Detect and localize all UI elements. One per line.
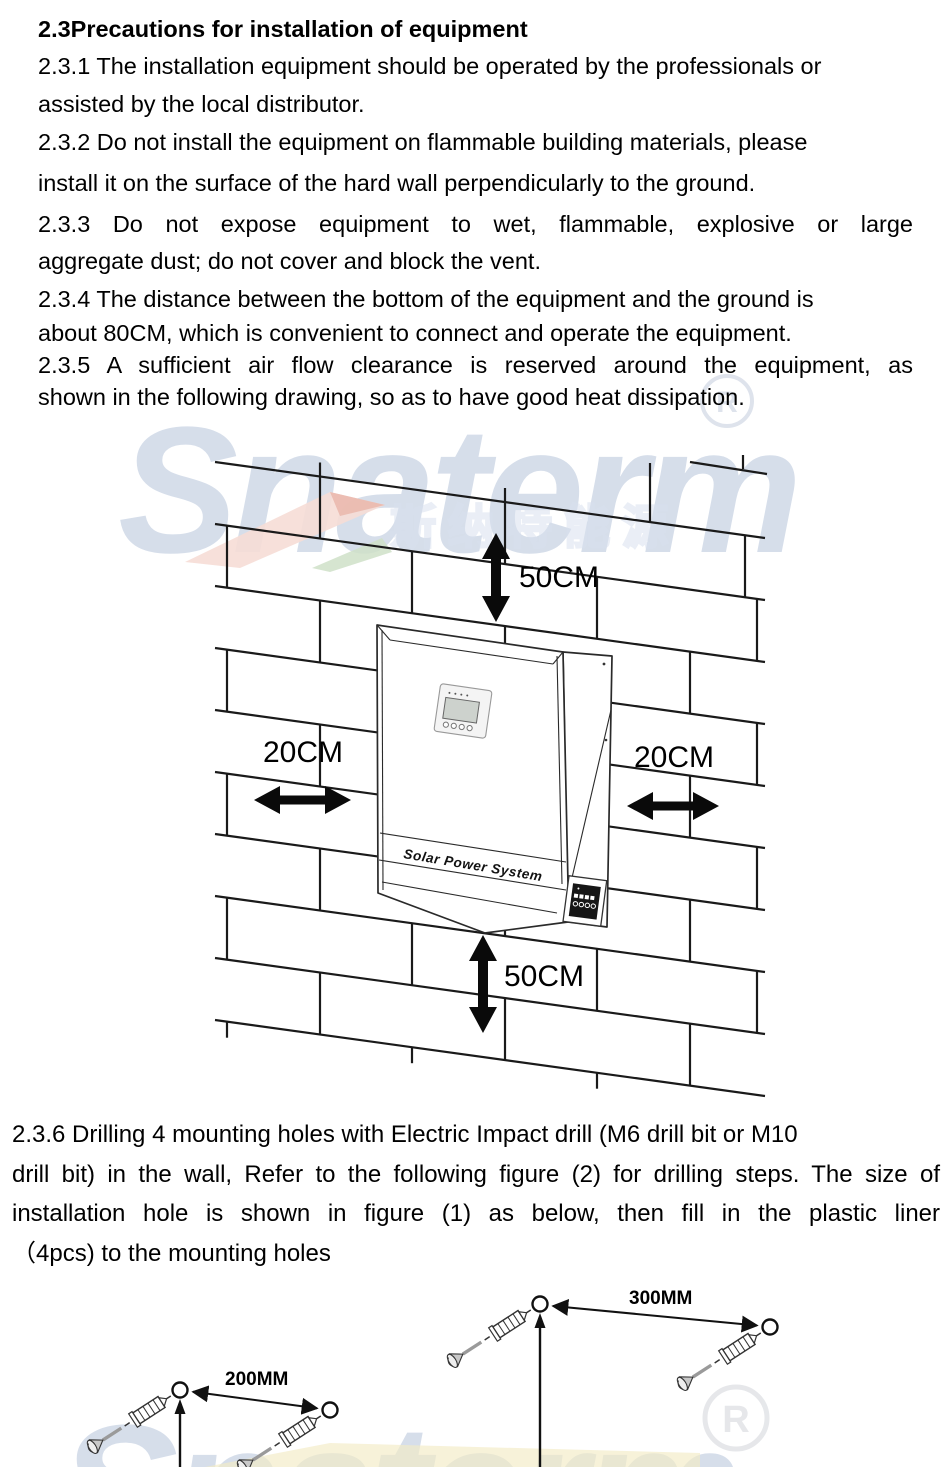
manual-page: { "doc": { "title": "2.3Precautions for …	[0, 0, 950, 1467]
drilling-section: 2.3.6 Drilling 4 mounting holes with Ele…	[12, 1115, 940, 1273]
lcd-panel	[434, 684, 492, 739]
panel-button	[451, 723, 457, 729]
mounting-hole	[323, 1403, 338, 1418]
clearance-arrow-right	[627, 792, 719, 820]
body-line: （4pcs) to the mounting holes	[12, 1234, 940, 1274]
mounting-hole	[533, 1297, 548, 1312]
terminal-block	[563, 876, 607, 927]
panel-button	[459, 724, 465, 730]
watermark-cjk-text: 斯纳特能源	[390, 501, 680, 553]
clearance-label-left: 20CM	[263, 736, 343, 770]
lcd-screen	[443, 697, 480, 723]
body-line: about 80CM, which is convenient to conne…	[38, 318, 913, 349]
svg-text:R: R	[722, 1399, 749, 1441]
mounting-hole	[173, 1383, 188, 1398]
body-line: 2.3.3 Do not expose equipment to wet, fl…	[38, 205, 913, 243]
mounting-hole	[763, 1320, 778, 1335]
panel-button	[467, 725, 473, 731]
clearance-label-top: 50CM	[519, 561, 599, 595]
inverter-illustration: Solar Power System	[377, 625, 612, 933]
precautions-section: 2.3Precautions for installation of equip…	[38, 10, 913, 413]
body-line: 2.3.2 Do not install the equipment on fl…	[38, 123, 913, 161]
body-line: 2.3.5 A sufficient air flow clearance is…	[38, 349, 913, 381]
body-line: drill bit) in the wall, Refer to the fol…	[12, 1155, 940, 1195]
hole-spacing-label-300mm: 300MM	[629, 1288, 692, 1310]
clearance-label-right: 20CM	[634, 741, 714, 775]
body-line: 2.3.4 The distance between the bottom of…	[38, 280, 913, 318]
body-line: assisted by the local distributor.	[38, 85, 913, 123]
body-line: install it on the surface of the hard wa…	[38, 161, 913, 205]
body-line: aggregate dust; do not cover and block t…	[38, 243, 913, 280]
body-line: 2.3.6 Drilling 4 mounting holes with Ele…	[12, 1115, 940, 1155]
hole-spacing-label-200mm: 200MM	[225, 1369, 288, 1391]
inverter-front-panel	[377, 625, 568, 933]
body-line: 2.3.1 The installation equipment should …	[38, 48, 913, 85]
section-title: 2.3Precautions for installation of equip…	[38, 10, 913, 48]
body-line: installation hole is shown in figure (1)…	[12, 1194, 940, 1234]
body-line: shown in the following drawing, so as to…	[38, 381, 913, 413]
clearance-arrow-left	[254, 786, 351, 814]
clearance-label-bottom: 50CM	[504, 960, 584, 994]
panel-button	[443, 722, 449, 728]
clearance-arrow-bottom	[469, 935, 497, 1033]
